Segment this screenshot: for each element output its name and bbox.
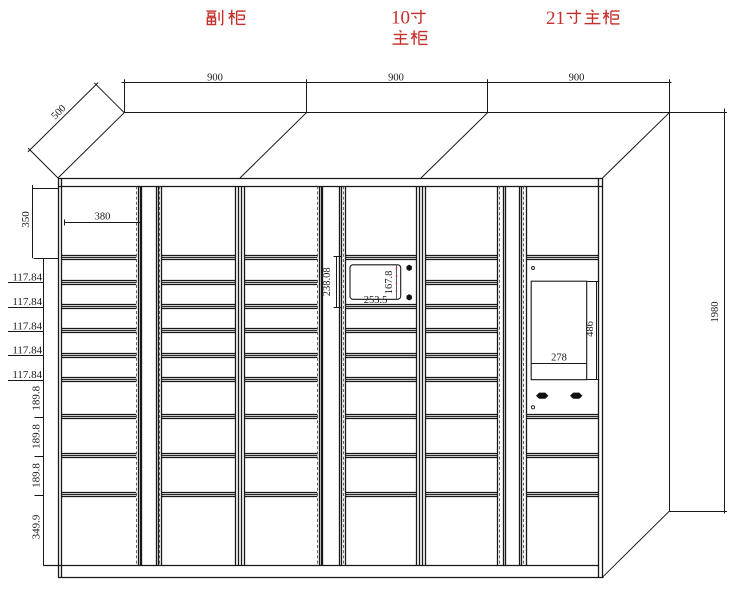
svg-text:21: 21 — [546, 8, 565, 29]
svg-text:900: 900 — [388, 72, 404, 83]
svg-text:189.8: 189.8 — [30, 424, 42, 449]
svg-text:10: 10 — [391, 8, 410, 29]
svg-text:117.84: 117.84 — [12, 369, 42, 381]
svg-text:117.84: 117.84 — [12, 320, 42, 332]
svg-text:117.84: 117.84 — [12, 345, 42, 357]
svg-text:1980: 1980 — [710, 302, 721, 323]
svg-text:486: 486 — [585, 321, 596, 337]
svg-text:238.08: 238.08 — [322, 267, 333, 296]
svg-text:350: 350 — [20, 211, 32, 228]
svg-text:117.84: 117.84 — [12, 272, 42, 284]
svg-text:900: 900 — [207, 72, 223, 83]
svg-text:189.8: 189.8 — [30, 463, 42, 488]
svg-text:278: 278 — [551, 353, 567, 364]
svg-text:117.84: 117.84 — [12, 296, 42, 308]
svg-text:167.8: 167.8 — [384, 271, 395, 295]
svg-text:253.5: 253.5 — [364, 295, 388, 306]
svg-text:189.8: 189.8 — [30, 385, 42, 410]
svg-text:380: 380 — [95, 212, 111, 223]
svg-text:900: 900 — [569, 72, 585, 83]
svg-text:349.9: 349.9 — [30, 514, 42, 539]
